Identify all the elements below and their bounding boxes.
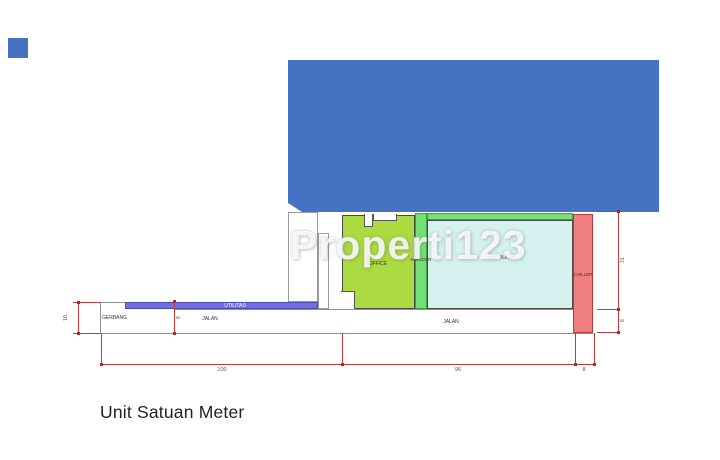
dim-line-bottom (101, 364, 594, 365)
caption-unit: Unit Satuan Meter (100, 402, 244, 423)
blue-square-mark (8, 38, 28, 58)
dim-dot (341, 363, 344, 366)
dim-label-inner-8: 8 (176, 312, 182, 324)
dim-label-96: 96 (446, 367, 470, 373)
dim-dot (617, 331, 620, 334)
gerbang-label: GERBANG (102, 315, 128, 321)
dim-tick-right-bottom (597, 332, 618, 333)
dim-line-inner (174, 301, 175, 334)
chiller-label: CHILLER (571, 272, 595, 278)
dim-line-left (78, 302, 79, 334)
utilitas-label: UTILITAS (210, 303, 260, 309)
dim-tick-right-mid (597, 309, 618, 310)
dim-label-100: 100 (208, 367, 236, 373)
dim-dot (593, 363, 596, 366)
dim-dot (77, 301, 80, 304)
dim-line-right (618, 211, 619, 332)
watermark: Properti123 (290, 222, 527, 269)
dim-label-right-31: 31 (620, 252, 626, 268)
dim-dot (574, 363, 577, 366)
dim-ext-x100 (101, 333, 102, 364)
dim-dot (77, 332, 80, 335)
jalan-label-left: JALAN (196, 316, 224, 322)
dim-dot (173, 300, 176, 303)
dim-dot (617, 210, 620, 213)
dim-ext-x342 (342, 333, 343, 364)
dim-dot (173, 332, 176, 335)
dim-dot (100, 363, 103, 366)
dim-label-8: 8 (576, 367, 592, 373)
dim-tick-right-top (597, 211, 618, 212)
site-plan-canvas: OFFICE KORIDOR PRODUKSI CHILLER UTILITAS… (0, 0, 720, 460)
dim-label-right-8: 8 (620, 315, 626, 327)
dim-ext-x575 (575, 333, 576, 364)
jalan-label-right: JALAN (437, 319, 465, 325)
dim-ext-x594 (594, 333, 595, 364)
green-top-band (427, 213, 573, 220)
office-top-strip (373, 214, 397, 221)
office-bottom-notch (341, 291, 355, 309)
dim-dot (617, 308, 620, 311)
dim-label-left-10: 10 (63, 308, 69, 328)
main-building-block (288, 60, 659, 212)
